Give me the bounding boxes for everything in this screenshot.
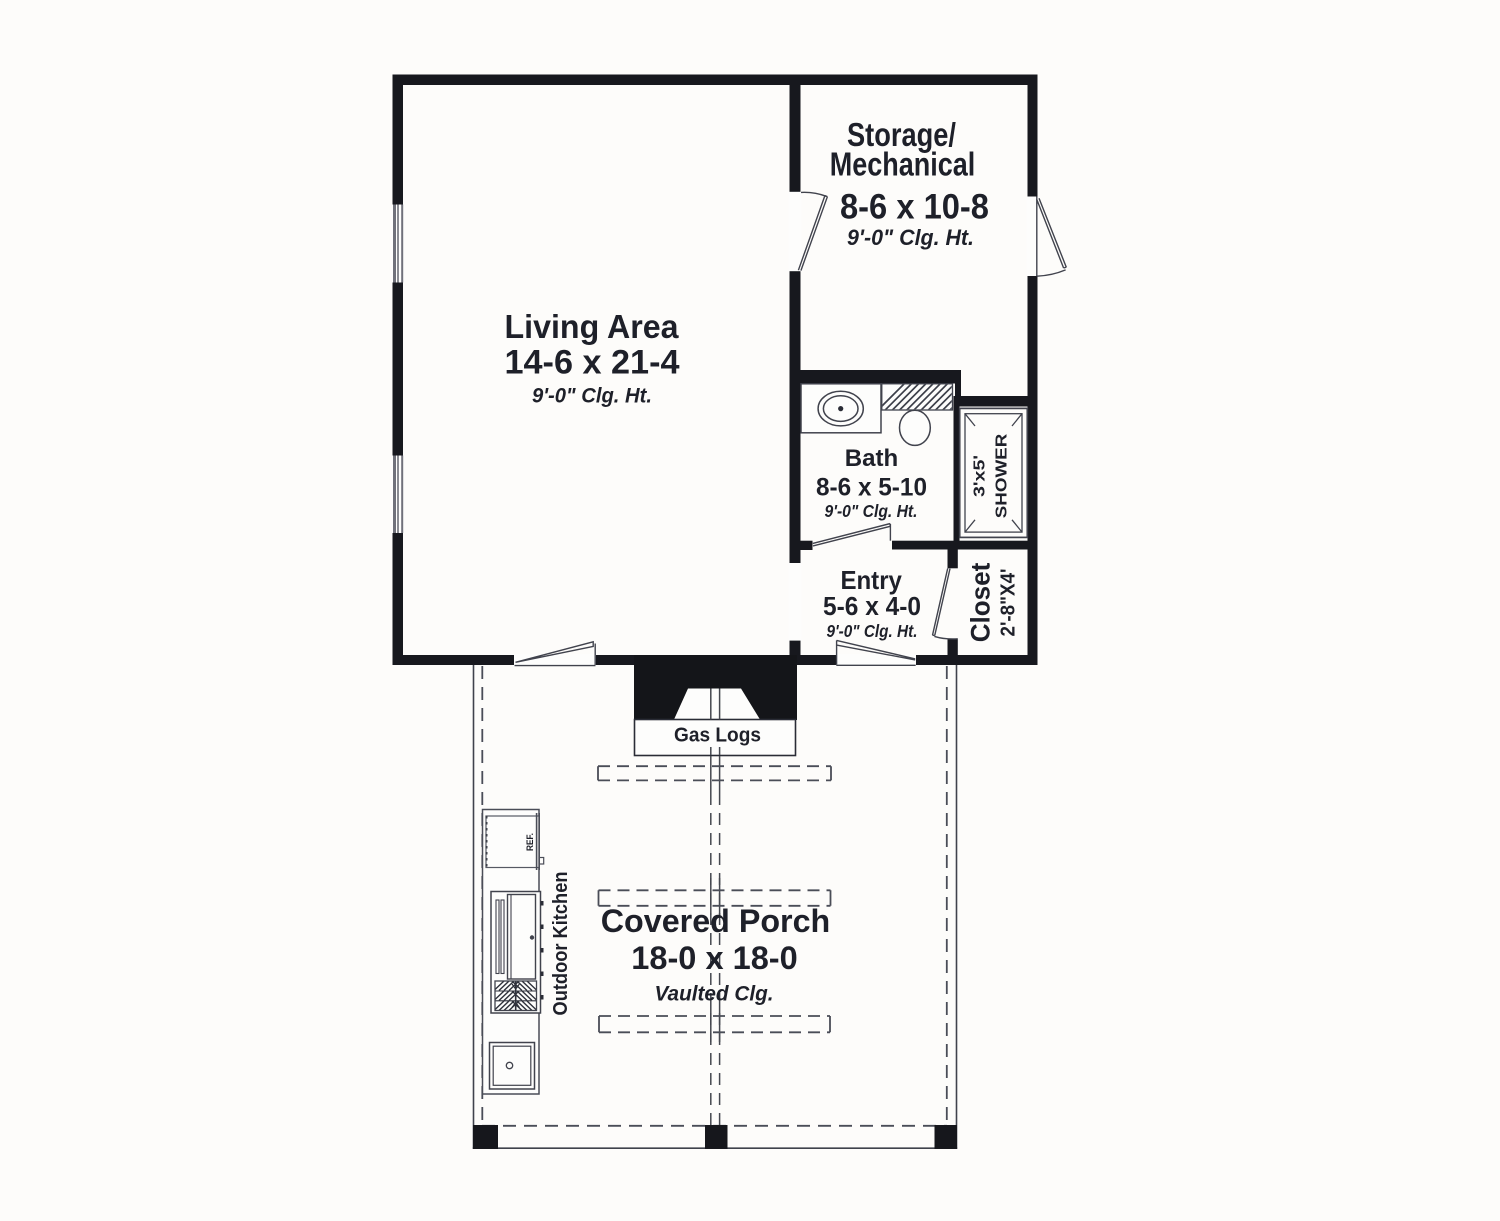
svg-text:Covered Porch: Covered Porch: [601, 903, 831, 939]
svg-text:SHOWER: SHOWER: [994, 434, 1011, 519]
svg-text:Bath: Bath: [845, 445, 899, 472]
svg-text:8-6 x 10-8: 8-6 x 10-8: [840, 188, 989, 227]
svg-text:Gas Logs: Gas Logs: [674, 724, 761, 747]
svg-text:Living Area: Living Area: [505, 308, 680, 345]
svg-text:9'-0" Clg. Ht.: 9'-0" Clg. Ht.: [847, 225, 974, 250]
svg-text:9'-0" Clg. Ht.: 9'-0" Clg. Ht.: [825, 501, 918, 521]
svg-text:3'x5': 3'x5': [972, 455, 989, 497]
svg-text:Entry: Entry: [840, 565, 902, 595]
svg-text:Mechanical: Mechanical: [830, 146, 976, 183]
svg-text:2'-8"X4': 2'-8"X4': [998, 569, 1020, 637]
svg-text:14-6 x 21-4: 14-6 x 21-4: [505, 344, 680, 382]
svg-text:9'-0" Clg. Ht.: 9'-0" Clg. Ht.: [827, 621, 918, 641]
svg-text:Closet: Closet: [966, 563, 996, 643]
svg-text:18-0 x 18-0: 18-0 x 18-0: [631, 940, 798, 976]
svg-text:8-6 x 5-10: 8-6 x 5-10: [816, 474, 927, 502]
svg-text:Outdoor Kitchen: Outdoor Kitchen: [550, 872, 572, 1016]
svg-text:Vaulted Clg.: Vaulted Clg.: [655, 982, 774, 1006]
svg-text:REF.: REF.: [525, 833, 535, 851]
svg-text:5-6 x 4-0: 5-6 x 4-0: [823, 593, 921, 621]
svg-text:9'-0" Clg. Ht.: 9'-0" Clg. Ht.: [532, 385, 652, 408]
